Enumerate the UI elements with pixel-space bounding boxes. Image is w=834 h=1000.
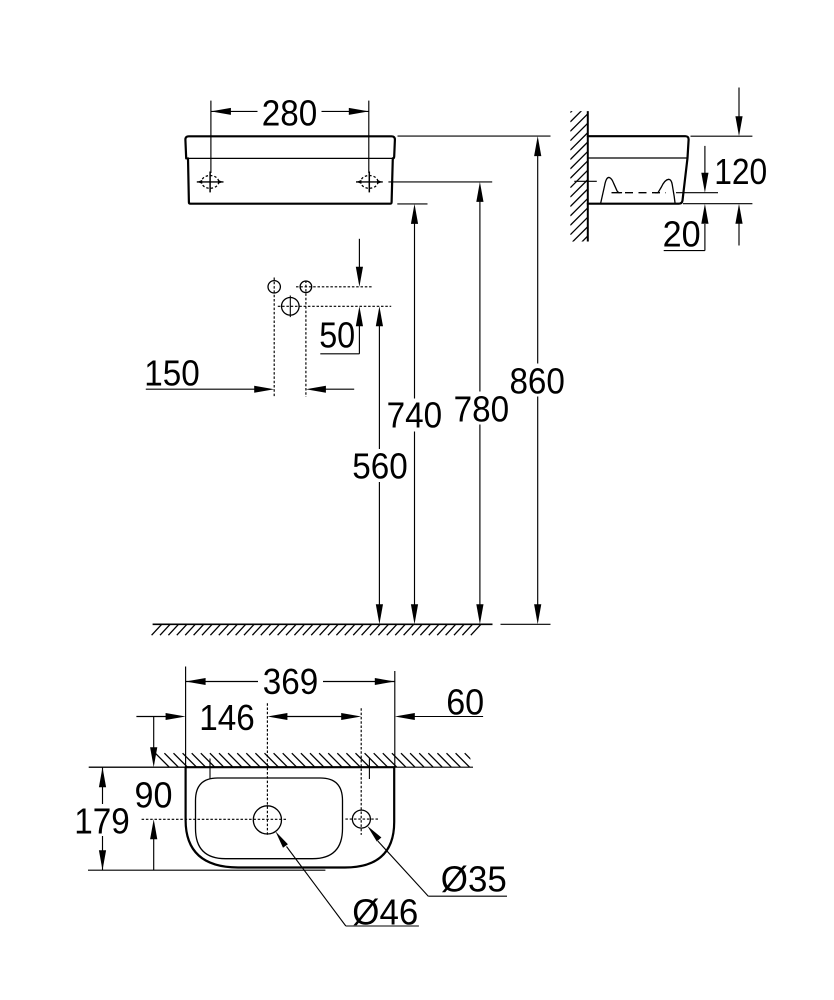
svg-text:780: 780	[454, 389, 510, 430]
svg-text:90: 90	[135, 774, 173, 815]
svg-text:179: 179	[74, 800, 130, 841]
svg-text:20: 20	[663, 214, 701, 255]
svg-text:560: 560	[352, 445, 408, 486]
svg-text:369: 369	[263, 661, 319, 702]
svg-text:860: 860	[509, 360, 565, 401]
svg-text:740: 740	[387, 395, 443, 436]
svg-text:Ø46: Ø46	[352, 892, 418, 933]
svg-text:Ø35: Ø35	[441, 859, 507, 900]
svg-text:60: 60	[446, 682, 484, 723]
svg-text:150: 150	[144, 353, 200, 394]
svg-text:50: 50	[319, 314, 355, 355]
svg-text:120: 120	[714, 151, 767, 192]
svg-text:146: 146	[199, 697, 255, 738]
svg-text:280: 280	[262, 92, 318, 133]
